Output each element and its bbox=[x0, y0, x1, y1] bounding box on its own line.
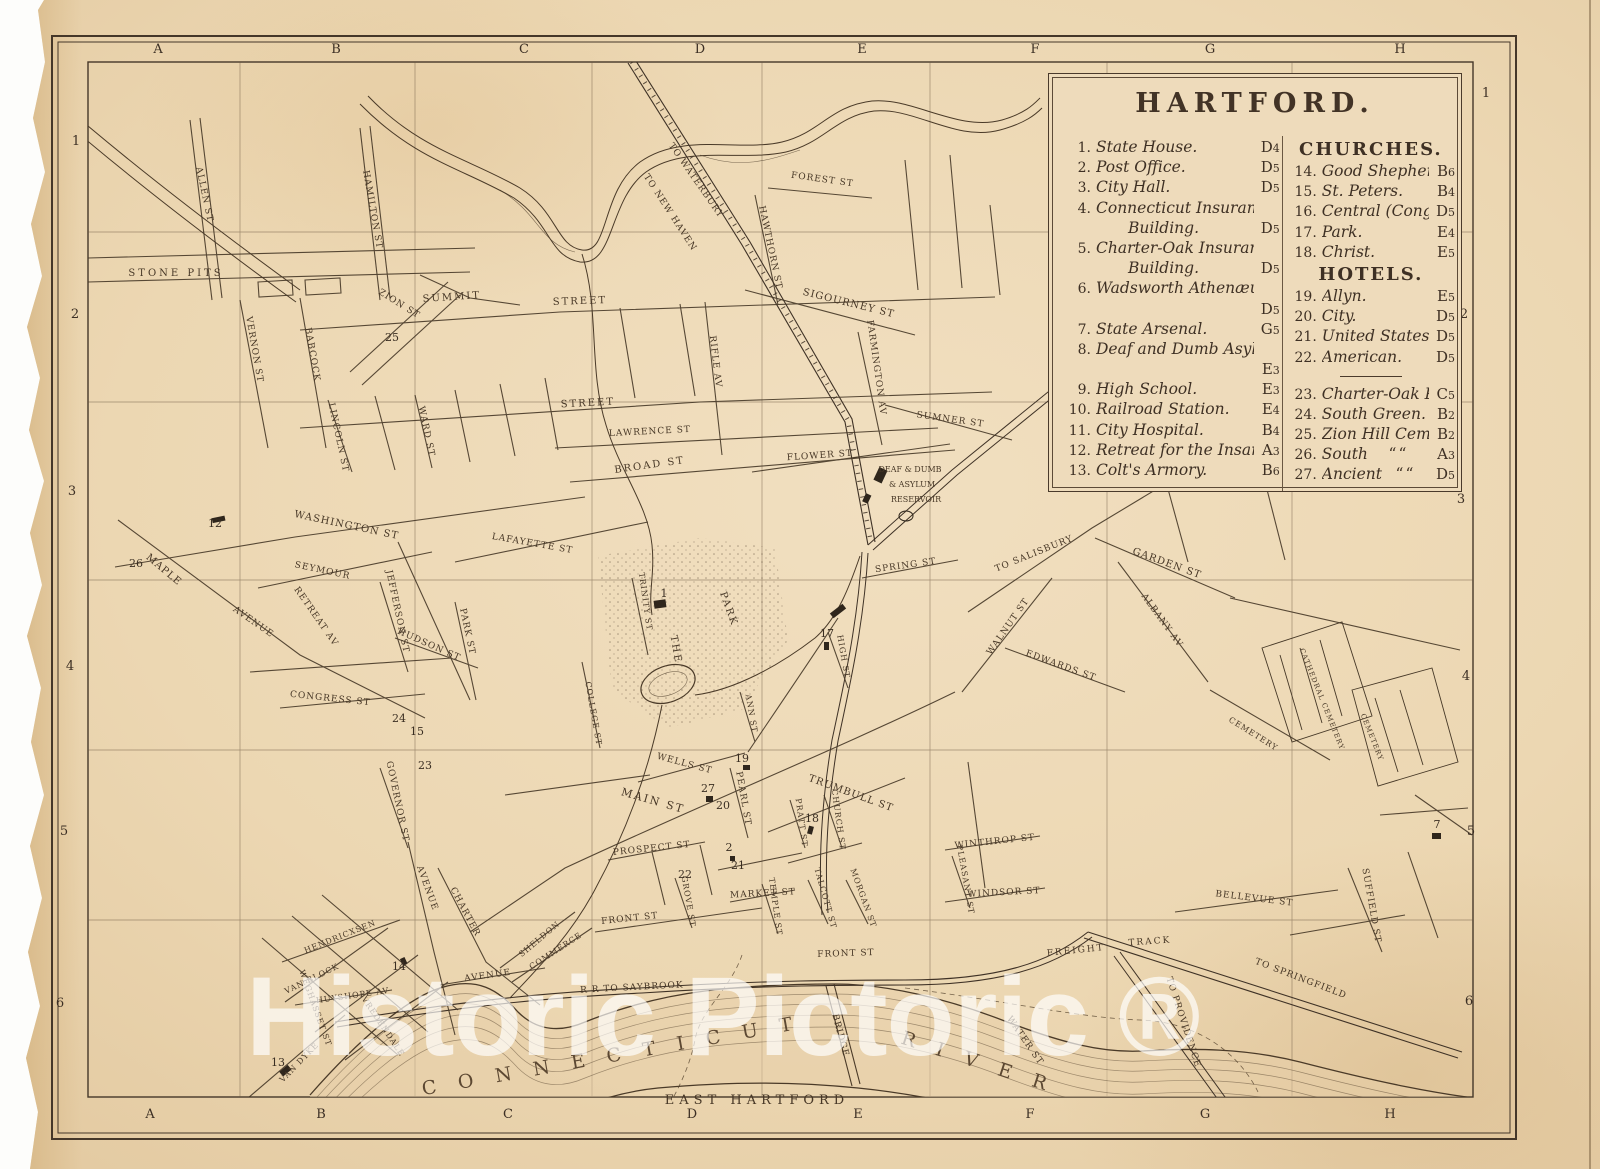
legend-item-number: 26. bbox=[1287, 447, 1322, 463]
legend-item-number: 10. bbox=[1061, 402, 1096, 418]
legend-item-label: Wadsworth Athenæum. bbox=[1096, 279, 1254, 297]
grid-letter: B bbox=[316, 1107, 326, 1122]
page-edge-crease bbox=[1589, 0, 1591, 1169]
street-label: TO SPRINGFIELD bbox=[1253, 957, 1348, 1001]
legend-item: 10.Railroad Station.E4 bbox=[1061, 400, 1280, 420]
legend-item-label: Post Office. bbox=[1096, 158, 1254, 176]
legend-item-number: 6. bbox=[1061, 281, 1096, 297]
legend-grid-ref: D5 bbox=[1429, 202, 1455, 220]
legend-item: 11.City Hospital.B4 bbox=[1061, 421, 1280, 441]
legend-item-number: 2. bbox=[1061, 160, 1096, 176]
grid-letter: F bbox=[1025, 1107, 1034, 1122]
legend-grid-ref: D5 bbox=[1429, 307, 1455, 325]
legend-item-label: Zion Hill Cemetery. bbox=[1322, 425, 1429, 443]
street-label: PEARL ST bbox=[733, 771, 752, 827]
street-label: FREIGHT bbox=[1046, 943, 1105, 959]
grid-letter: H bbox=[1384, 1107, 1395, 1122]
map-marker: 21 bbox=[731, 859, 745, 872]
legend-item: 8.Deaf and Dumb Asylum. bbox=[1061, 340, 1280, 360]
street-label: MAIN ST bbox=[620, 785, 687, 816]
legend-item-number: 3. bbox=[1061, 180, 1096, 196]
grid-letter: E bbox=[857, 42, 867, 57]
grid-letter: G bbox=[1205, 42, 1215, 57]
street-label: GARDEN ST bbox=[1131, 546, 1203, 581]
legend-item: 26.South““A3 bbox=[1287, 445, 1455, 465]
map-paper: STONE PITSALLEN STHAMILTON STVERNON STBA… bbox=[0, 0, 1600, 1169]
legend-item-number: 13. bbox=[1061, 463, 1096, 479]
legend-item-number: 15. bbox=[1287, 184, 1322, 200]
legend-item-number: 20. bbox=[1287, 309, 1322, 325]
legend-item-number: 1. bbox=[1061, 140, 1096, 156]
legend-item: 27.Ancient““D5 bbox=[1287, 465, 1455, 485]
legend-grid-ref: G5 bbox=[1254, 320, 1280, 338]
legend-item: 17.Park.E4 bbox=[1287, 223, 1455, 243]
legend-item-label: South Green. bbox=[1322, 405, 1429, 423]
legend-item: 22.American.D5 bbox=[1287, 348, 1455, 368]
legend-left-column: 1.State House.D42.Post Office.D53.City H… bbox=[1049, 136, 1282, 491]
legend-item: 19.Allyn.E5 bbox=[1287, 287, 1455, 307]
legend-item-label: Deaf and Dumb Asylum. bbox=[1096, 340, 1254, 358]
legend-item: Building.D5 bbox=[1061, 219, 1280, 239]
legend-item-label: Railroad Station. bbox=[1096, 400, 1254, 418]
street-label: ALLEN ST bbox=[193, 165, 215, 223]
legend-item: 12.Retreat for the Insane.A3 bbox=[1061, 441, 1280, 461]
legend-item-label: High School. bbox=[1096, 380, 1254, 398]
legend-item-label: Ancient““ bbox=[1322, 465, 1429, 483]
grid-letter: C bbox=[519, 42, 529, 57]
legend-grid-ref: B6 bbox=[1254, 461, 1280, 479]
map-marker: 23 bbox=[418, 759, 432, 772]
grid-number: 5 bbox=[1467, 824, 1475, 839]
legend-item: 16.Central (Cong.).D5 bbox=[1287, 202, 1455, 222]
map-marker: 22 bbox=[678, 868, 692, 881]
hotels-heading: HOTELS. bbox=[1287, 263, 1455, 287]
street-label: SPRING ST bbox=[874, 557, 936, 575]
street-label: FOREST ST bbox=[790, 171, 854, 190]
legend-item: Building.D5 bbox=[1061, 259, 1280, 279]
legend-grid-ref: D5 bbox=[1429, 348, 1455, 366]
street-label: EAST HARTFORD bbox=[665, 1093, 849, 1108]
grid-number: 1 bbox=[72, 134, 80, 149]
legend-grid-ref: D5 bbox=[1429, 465, 1455, 483]
legend-item: 7.State Arsenal.G5 bbox=[1061, 320, 1280, 340]
street-label: WELLS ST bbox=[656, 752, 714, 776]
legend-item-label: Allyn. bbox=[1322, 287, 1429, 305]
legend-item-label: Colt's Armory. bbox=[1096, 461, 1254, 479]
legend-item-number: 16. bbox=[1287, 204, 1322, 220]
legend-grid-ref: E5 bbox=[1429, 287, 1455, 305]
legend-grid-ref: B6 bbox=[1429, 162, 1455, 180]
legend-item: E3 bbox=[1061, 360, 1280, 380]
legend-item-label: Building. bbox=[1096, 259, 1254, 277]
legend-item-label: South““ bbox=[1322, 445, 1429, 463]
street-label: WASHINGTON ST bbox=[293, 509, 400, 542]
street-label: AVENUE bbox=[463, 968, 512, 985]
legend-grid-ref: E3 bbox=[1254, 380, 1280, 398]
legend-item-label: American. bbox=[1322, 348, 1429, 366]
legend-item-number: 24. bbox=[1287, 407, 1322, 423]
grid-letter: E bbox=[853, 1107, 863, 1122]
street-label: RESERVOIR bbox=[891, 495, 942, 504]
legend-item: 24.South Green.B2 bbox=[1287, 405, 1455, 425]
grid-letter: D bbox=[695, 42, 705, 57]
street-label: TRUMBULL ST bbox=[807, 773, 895, 814]
grid-letter: B bbox=[331, 42, 341, 57]
legend-item-number: 8. bbox=[1061, 342, 1096, 358]
street-label: WARD ST bbox=[416, 405, 436, 457]
street-label: TO WATERBURY bbox=[666, 142, 725, 221]
map-marker: 26 bbox=[129, 557, 143, 570]
grid-number: 4 bbox=[66, 659, 74, 674]
street-label: AVENUE bbox=[414, 864, 440, 913]
grid-letter: D bbox=[687, 1107, 697, 1122]
legend-grid-ref: E3 bbox=[1254, 360, 1280, 378]
legend-grid-ref: D5 bbox=[1254, 219, 1280, 237]
grid-number: 6 bbox=[56, 996, 64, 1011]
map-marker: 19 bbox=[735, 752, 749, 765]
street-label: FRONT ST bbox=[817, 948, 875, 960]
historic-map-scan: STONE PITSALLEN STHAMILTON STVERNON STBA… bbox=[0, 0, 1600, 1169]
map-legend: HARTFORD. 1.State House.D42.Post Office.… bbox=[1048, 73, 1462, 492]
legend-item-label: Retreat for the Insane. bbox=[1096, 441, 1254, 459]
legend-grid-ref: D5 bbox=[1254, 158, 1280, 176]
map-marker: 17 bbox=[820, 627, 834, 640]
legend-item-label: State Arsenal. bbox=[1096, 320, 1254, 338]
legend-item-number: 4. bbox=[1061, 201, 1096, 217]
street-label: WINTHROP ST bbox=[954, 833, 1035, 851]
street-label: BABCOCK bbox=[302, 327, 321, 383]
legend-item-label: City Hospital. bbox=[1096, 421, 1254, 439]
grid-letter: A bbox=[144, 1107, 155, 1122]
legend-grid-ref: D4 bbox=[1254, 138, 1280, 156]
street-label: STONE PITS bbox=[128, 268, 223, 279]
legend-grid-ref: D5 bbox=[1429, 327, 1455, 345]
legend-item-label: Connecticut Insurance bbox=[1096, 199, 1254, 217]
grid-number: 4 bbox=[1462, 669, 1470, 684]
legend-item-label: City. bbox=[1322, 307, 1429, 325]
legend-item: 6.Wadsworth Athenæum. bbox=[1061, 279, 1280, 299]
legend-item: 21.United States.D5 bbox=[1287, 327, 1455, 347]
legend-item-label: United States. bbox=[1322, 327, 1429, 345]
legend-item-label: City Hall. bbox=[1096, 178, 1254, 196]
map-marker: 7 bbox=[1434, 818, 1441, 831]
legend-grid-ref: A3 bbox=[1254, 441, 1280, 459]
cemetery-blocks bbox=[1262, 622, 1458, 786]
legend-grid-ref: B4 bbox=[1254, 421, 1280, 439]
street-label: WALNUT ST bbox=[985, 597, 1031, 657]
legend-item-number: 12. bbox=[1061, 443, 1096, 459]
legend-item-number: 17. bbox=[1287, 225, 1322, 241]
street-label: MAPLE bbox=[144, 552, 184, 588]
map-marker: 18 bbox=[805, 812, 819, 825]
legend-item: 5.Charter-Oak Insurance bbox=[1061, 239, 1280, 259]
legend-grid-ref: E4 bbox=[1429, 223, 1455, 241]
legend-grid-ref: B2 bbox=[1429, 425, 1455, 443]
street-label: CEMETERY bbox=[1227, 715, 1279, 752]
legend-item-number: 5. bbox=[1061, 241, 1096, 257]
street-label: CEMETERY bbox=[1359, 712, 1385, 762]
map-marker: 24 bbox=[392, 712, 406, 725]
street-label: PLEASANT ST bbox=[955, 844, 976, 915]
grid-number: 6 bbox=[1465, 994, 1473, 1009]
grid-letter: H bbox=[1394, 42, 1405, 57]
grid-letter: G bbox=[1200, 1107, 1210, 1122]
legend-item: 13.Colt's Armory.B6 bbox=[1061, 461, 1280, 481]
legend-item: 20.City.D5 bbox=[1287, 307, 1455, 327]
legend-item-number: 14. bbox=[1287, 164, 1322, 180]
grid-number: 2 bbox=[71, 307, 79, 322]
street-label: DEAF & DUMB bbox=[878, 465, 941, 474]
legend-item-number: 18. bbox=[1287, 245, 1322, 261]
legend-item: D5 bbox=[1061, 300, 1280, 320]
street-label: CATHEDRAL CEMETERY bbox=[1298, 647, 1346, 751]
street-label: AVENUE bbox=[230, 604, 275, 640]
legend-item: 4.Connecticut Insurance bbox=[1061, 199, 1280, 219]
legend-item-label: Park. bbox=[1322, 223, 1429, 241]
legend-item: 3.City Hall.D5 bbox=[1061, 178, 1280, 198]
street-label: LINCOLN ST bbox=[326, 402, 350, 473]
grid-letter: F bbox=[1030, 42, 1039, 57]
legend-item-number: 9. bbox=[1061, 382, 1096, 398]
legend-grid-ref: E5 bbox=[1429, 243, 1455, 261]
street-label: EDWARDS ST bbox=[1024, 649, 1097, 684]
street-label: HUYSHOPE AV bbox=[315, 986, 389, 1005]
legend-grid-ref: D5 bbox=[1254, 178, 1280, 196]
map-marker: 25 bbox=[385, 331, 399, 344]
street-label: PROSPECT ST bbox=[613, 840, 692, 858]
churches-heading: CHURCHES. bbox=[1287, 138, 1455, 162]
legend-item: 25.Zion Hill Cemetery.B2 bbox=[1287, 425, 1455, 445]
legend-item-number: 7. bbox=[1061, 322, 1096, 338]
map-marker: 13 bbox=[271, 1056, 285, 1069]
legend-item-label: State House. bbox=[1096, 138, 1254, 156]
street-label: TO SALISBURY bbox=[994, 534, 1075, 574]
street-label: FARMINGTON AV bbox=[864, 319, 887, 416]
legend-grid-ref: E4 bbox=[1254, 400, 1280, 418]
legend-item: 1.State House.D4 bbox=[1061, 138, 1280, 158]
street-label: COLLEGE ST bbox=[583, 681, 603, 746]
legend-divider bbox=[1340, 376, 1402, 377]
legend-item-label: Good Shepherd. bbox=[1322, 162, 1429, 180]
legend-item-label: Charter-Oak Place. bbox=[1322, 385, 1429, 403]
street-label: LAWRENCE ST bbox=[609, 425, 691, 439]
legend-item: 2.Post Office.D5 bbox=[1061, 158, 1280, 178]
street-label: JEFFERSON ST bbox=[383, 568, 411, 654]
street-label: RIFLE AV bbox=[707, 335, 723, 388]
legend-item-number: 21. bbox=[1287, 329, 1322, 345]
street-label: TO NEW HAVEN bbox=[641, 173, 698, 254]
street-label: PARK ST bbox=[457, 607, 477, 655]
street-label: RETREAT AV bbox=[291, 585, 339, 648]
legend-item: 14.Good Shepherd.B6 bbox=[1287, 162, 1455, 182]
map-marker: 12 bbox=[208, 517, 222, 530]
legend-grid-ref: B4 bbox=[1429, 182, 1455, 200]
legend-grid-ref: D5 bbox=[1254, 300, 1280, 318]
legend-item-number: 23. bbox=[1287, 387, 1322, 403]
legend-item: 18.Christ.E5 bbox=[1287, 243, 1455, 263]
legend-item-label: Central (Cong.). bbox=[1322, 202, 1429, 220]
grid-letter: C bbox=[503, 1107, 513, 1122]
legend-item: 9.High School.E3 bbox=[1061, 380, 1280, 400]
street-label: HENDRICXSEN bbox=[303, 918, 377, 955]
street-label: BELLEVUE ST bbox=[1215, 889, 1294, 908]
legend-item-label: Building. bbox=[1096, 219, 1254, 237]
legend-item-label: Charter-Oak Insurance bbox=[1096, 239, 1254, 257]
legend-item-label: St. Peters. bbox=[1322, 182, 1429, 200]
street-label: VERNON ST bbox=[243, 315, 265, 384]
grid-number: 3 bbox=[68, 484, 76, 499]
legend-item: 23.Charter-Oak Place.C5 bbox=[1287, 385, 1455, 405]
legend-item: 15.St. Peters.B4 bbox=[1287, 182, 1455, 202]
street-label: WINDSOR ST bbox=[967, 886, 1041, 900]
legend-item-number: 22. bbox=[1287, 350, 1322, 366]
grid-number: 5 bbox=[60, 824, 68, 839]
street-label: SUMNER ST bbox=[916, 410, 985, 429]
grid-number: 1 bbox=[1482, 86, 1490, 101]
street-label: TRACK bbox=[1128, 936, 1171, 949]
legend-grid-ref: D5 bbox=[1254, 259, 1280, 277]
street-label: GOVERNOR ST bbox=[384, 760, 411, 843]
street-label: SUMMIT bbox=[422, 290, 481, 305]
map-marker: 27 bbox=[701, 782, 715, 795]
legend-item-number: 27. bbox=[1287, 467, 1322, 483]
street-label: MARKET ST bbox=[730, 887, 796, 900]
legend-item-label: Christ. bbox=[1322, 243, 1429, 261]
legend-item-number: 11. bbox=[1061, 423, 1096, 439]
legend-item-number: 19. bbox=[1287, 289, 1322, 305]
street-label: & ASYLUM bbox=[889, 480, 935, 489]
legend-right-column: CHURCHES.14.Good Shepherd.B615.St. Peter… bbox=[1282, 136, 1461, 491]
legend-grid-ref: A3 bbox=[1429, 445, 1455, 463]
street-label: CHARTER bbox=[448, 886, 482, 939]
city-park-area bbox=[598, 538, 788, 728]
legend-grid-ref: C5 bbox=[1429, 385, 1455, 403]
map-marker: 20 bbox=[716, 799, 730, 812]
legend-grid-ref: B2 bbox=[1429, 405, 1455, 423]
map-marker: 15 bbox=[410, 725, 424, 738]
grid-letter: A bbox=[152, 42, 163, 57]
legend-item-number: 25. bbox=[1287, 427, 1322, 443]
map-marker: 2 bbox=[726, 841, 733, 854]
map-marker: 1 bbox=[661, 587, 668, 600]
map-marker: 14 bbox=[392, 960, 406, 973]
grid-number: 3 bbox=[1457, 492, 1465, 507]
street-label: STREET bbox=[553, 295, 608, 308]
street-label: ALBANY AV bbox=[1138, 591, 1184, 649]
